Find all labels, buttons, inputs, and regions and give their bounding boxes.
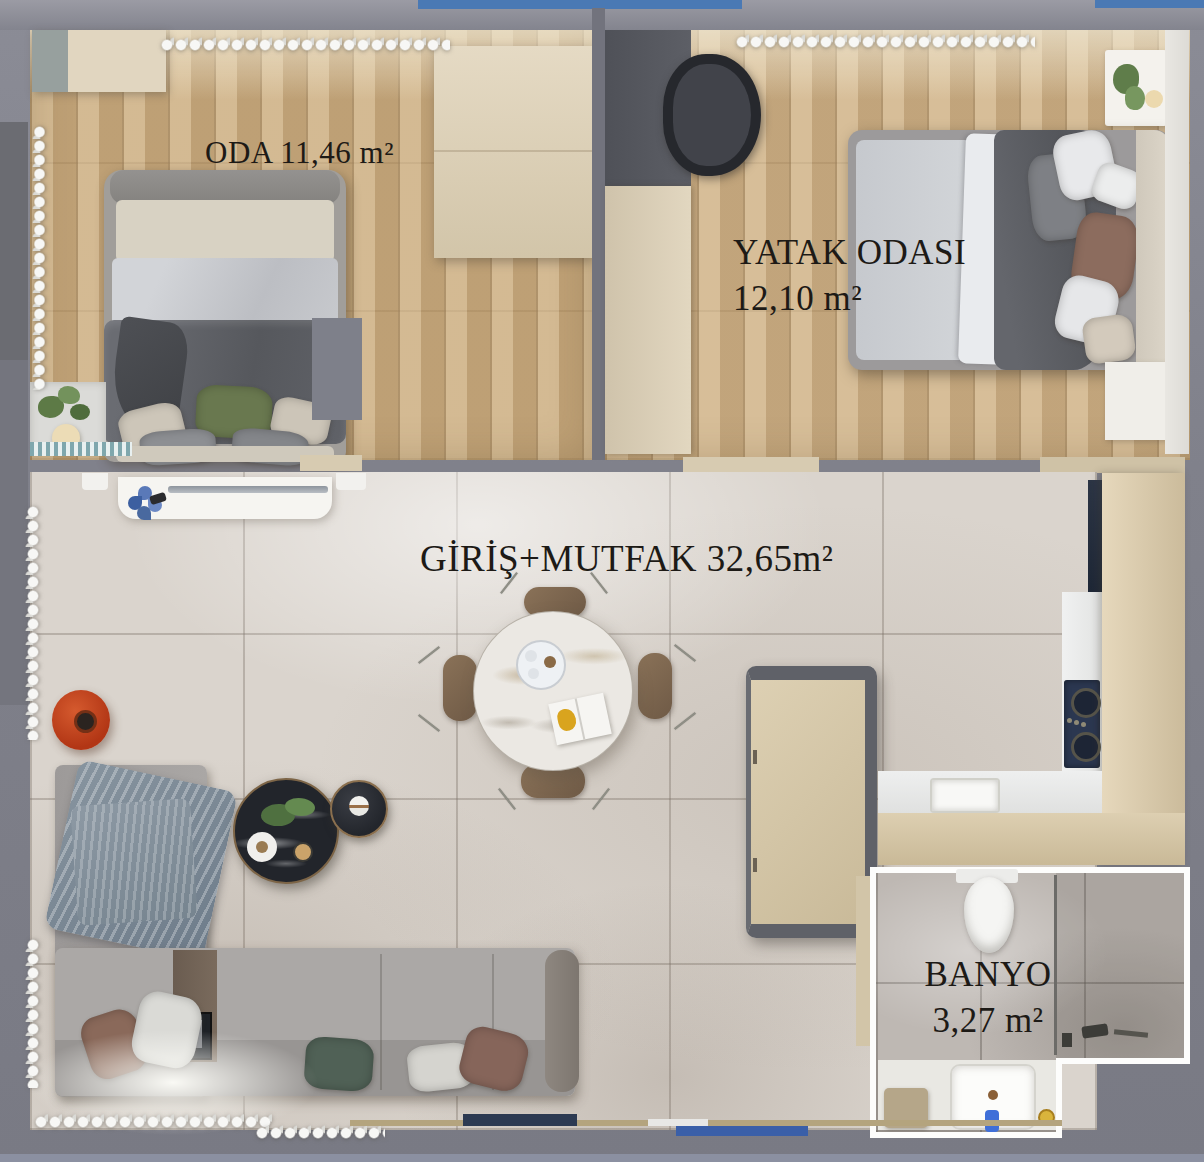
book-spine <box>575 698 586 739</box>
room-oda <box>30 30 592 460</box>
dining-chair <box>638 653 672 719</box>
bed <box>104 170 346 462</box>
room-name: BANYO <box>902 952 1074 998</box>
curtain <box>735 33 1035 51</box>
kitchen-counter-bottom-beige <box>878 813 1185 865</box>
cooktop <box>1064 680 1100 768</box>
bottom-wall-band <box>0 1154 1204 1162</box>
curtain <box>34 1112 272 1132</box>
plant <box>58 386 80 404</box>
curtain <box>255 1124 385 1142</box>
open-book <box>548 693 612 746</box>
headboard <box>110 170 340 204</box>
coffee-table <box>233 778 339 884</box>
dining-table <box>473 611 633 771</box>
book-art <box>556 707 578 732</box>
door-mat <box>463 1114 577 1126</box>
knob <box>1067 718 1072 723</box>
mattress <box>116 200 334 262</box>
room-name: YATAK ODASI <box>733 230 966 276</box>
room-label-oda: ODA 11,46 m² <box>205 133 394 173</box>
wall-beige-segment <box>1040 457 1185 473</box>
burner <box>1071 688 1101 718</box>
knob <box>1074 720 1079 725</box>
desk-chair <box>663 54 761 176</box>
room-area: 12,10 m² <box>733 276 966 322</box>
cushion-seam <box>380 954 382 1090</box>
wardrobe <box>605 186 691 454</box>
cabinet <box>1105 362 1167 440</box>
chair-leg <box>498 788 516 810</box>
flower-petal <box>137 506 151 520</box>
room-label-banyo: BANYO 3,27 m² <box>902 952 1074 1043</box>
chair-leg <box>418 714 440 732</box>
curtain <box>160 36 450 54</box>
wardrobe-divider <box>434 150 592 152</box>
throw-blanket-fold <box>70 798 198 926</box>
cup <box>293 842 313 862</box>
tray <box>247 832 277 862</box>
curtain <box>24 505 42 740</box>
wall-beige-segment <box>300 455 362 471</box>
knob <box>1081 722 1086 727</box>
kitchen-sink <box>930 778 1000 813</box>
room-label-yatak-odasi: YATAK ODASI 12,10 m² <box>733 230 966 321</box>
side-table-red <box>52 690 110 750</box>
cup <box>256 841 268 853</box>
decor-sphere <box>349 796 369 816</box>
cup <box>525 650 537 662</box>
cabinet <box>32 30 166 92</box>
table-lamp <box>1145 90 1163 108</box>
chair-leg <box>592 788 610 810</box>
pantry-strip <box>856 876 872 1046</box>
kitchen-counter-beige <box>1102 473 1185 865</box>
radiator <box>30 442 132 456</box>
wall-beige-segment <box>683 457 819 472</box>
top-accent-strip <box>418 0 742 9</box>
plant <box>285 798 315 816</box>
sofa-armrest <box>545 950 579 1092</box>
top-accent-strip <box>1095 0 1204 8</box>
plant <box>70 404 90 420</box>
cup <box>528 668 539 679</box>
wall <box>592 8 605 460</box>
chair-leg <box>674 712 696 730</box>
cup <box>74 710 97 733</box>
island-handle <box>753 858 757 872</box>
chair-leg <box>674 644 696 662</box>
side-table-black <box>330 780 388 838</box>
left-wall-panel <box>0 122 28 360</box>
wardrobe <box>434 46 592 258</box>
burner <box>1071 732 1101 762</box>
cup <box>544 656 556 668</box>
curtain <box>32 125 47 390</box>
wall-bracket <box>82 473 108 490</box>
window-sill <box>1165 30 1189 454</box>
plant <box>1125 86 1145 110</box>
wall-bracket <box>336 473 366 490</box>
floor-plan: ODA 11,46 m² YATAK ODASI 12,10 m² GİRİŞ+… <box>0 0 1204 1162</box>
nightstand <box>1105 50 1167 126</box>
dining-chair <box>443 655 477 721</box>
island-handle <box>753 750 757 764</box>
door-sill <box>648 1119 708 1126</box>
room-label-giris-mutfak: GİRİŞ+MUTFAK 32,65m² <box>420 535 833 583</box>
wall-column <box>312 318 362 420</box>
serving-tray <box>516 640 566 690</box>
shelf-bar <box>168 486 328 493</box>
chair-leg <box>418 646 440 664</box>
pillow <box>1081 313 1137 366</box>
curtain <box>24 938 42 1088</box>
room-area: 3,27 m² <box>902 998 1074 1044</box>
flower-decor <box>128 486 164 520</box>
entry-accent-strip <box>676 1126 808 1136</box>
drain <box>988 1090 998 1100</box>
